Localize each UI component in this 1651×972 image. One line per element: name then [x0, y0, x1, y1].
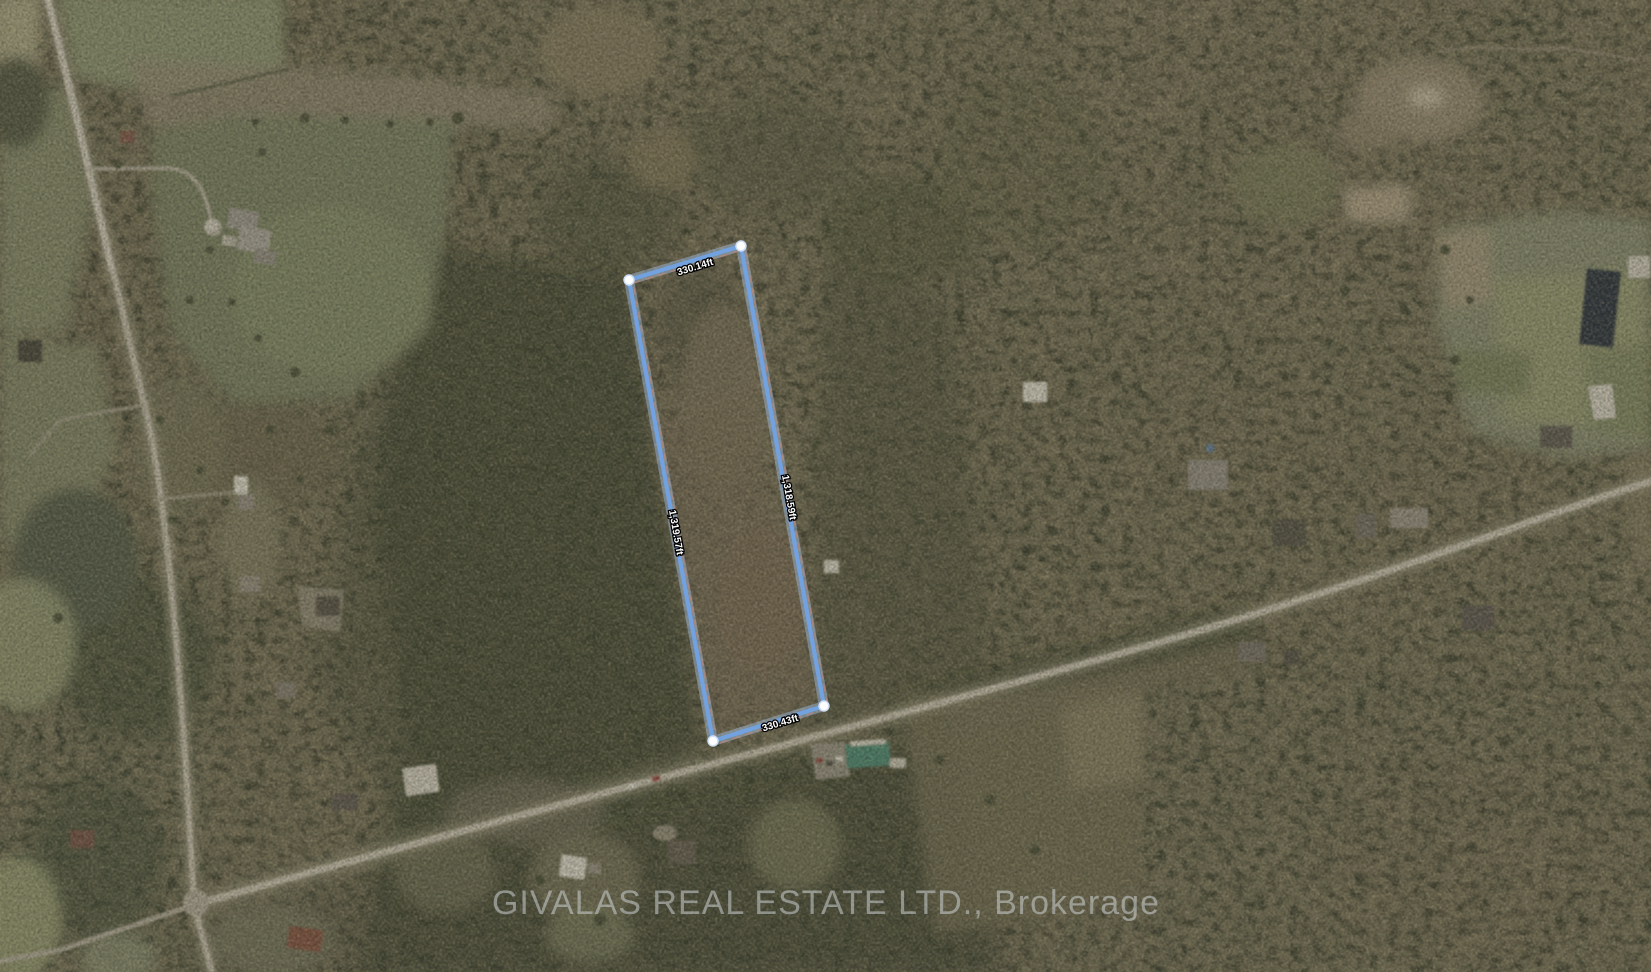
svg-text:GIVALAS REAL ESTATE LTD., Brok: GIVALAS REAL ESTATE LTD., Brokerage	[492, 884, 1160, 922]
